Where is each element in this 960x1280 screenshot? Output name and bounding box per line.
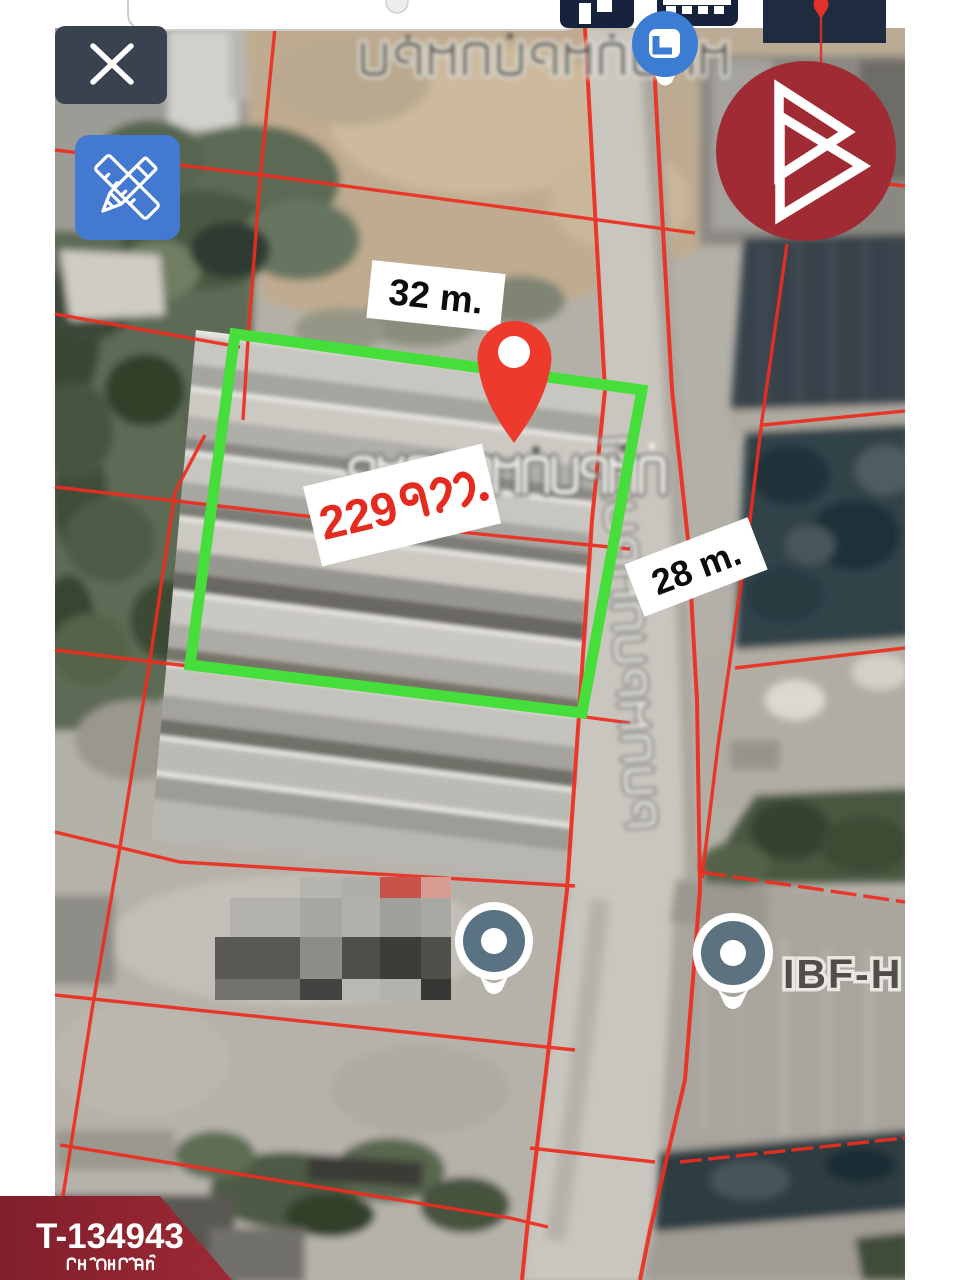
svg-text:T-134943: T-134943 [36,1217,184,1256]
svg-text:IBF-H: IBF-H [783,951,902,997]
